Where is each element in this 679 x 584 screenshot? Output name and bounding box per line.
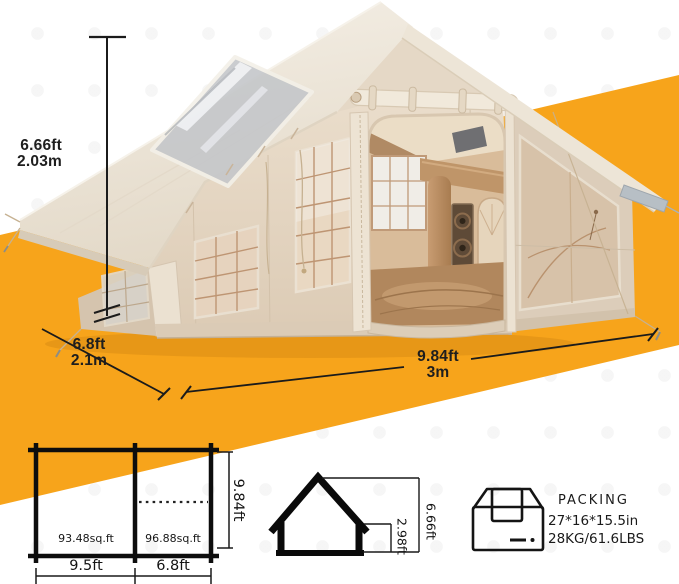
floorplan-depth-label: 9.84ft xyxy=(230,470,246,530)
depth-ft-label: 6.8ft xyxy=(64,337,114,353)
door-flap-right xyxy=(505,100,516,332)
floorplan-left-width-label: 9.5ft xyxy=(56,558,116,574)
height-dimension-label: 6.66ft 2.03m xyxy=(4,138,62,170)
front-door-opening xyxy=(350,100,516,338)
elevation-wall-height-label: 2.98ft xyxy=(395,512,410,562)
floorplan-right-area-label: 96.88sq.ft xyxy=(137,532,209,545)
interior-speaker-panel xyxy=(452,204,473,266)
height-ft-label: 6.66ft xyxy=(4,138,62,154)
floorplan-right-width-label: 6.8ft xyxy=(143,558,203,574)
depth-m-label: 2.1m xyxy=(64,353,114,369)
front-window-left xyxy=(195,226,258,318)
width-m-label: 3m xyxy=(405,365,471,381)
interior-arch-window xyxy=(478,198,506,268)
packing-box-icon xyxy=(473,489,543,550)
width-ft-label: 9.84ft xyxy=(405,349,471,365)
product-dimension-image: 6.66ft 2.03m 6.8ft 2.1m 9.84ft 3m 93.48s… xyxy=(0,0,679,584)
packing-size-label: 27*16*15.5in xyxy=(548,513,638,529)
width-dimension-label: 9.84ft 3m xyxy=(405,349,471,381)
packing-title: PACKING xyxy=(558,493,629,508)
height-m-label: 2.03m xyxy=(4,154,62,170)
depth-dimension-label: 6.8ft 2.1m xyxy=(64,337,114,369)
tent-illustration xyxy=(4,2,679,357)
floorplan-left-area-label: 93.48sq.ft xyxy=(50,532,122,545)
packing-weight-label: 28KG/61.6LBS xyxy=(548,531,644,547)
interior-far-window xyxy=(372,156,426,230)
elevation-peak-height-label: 6.66ft xyxy=(424,497,439,547)
